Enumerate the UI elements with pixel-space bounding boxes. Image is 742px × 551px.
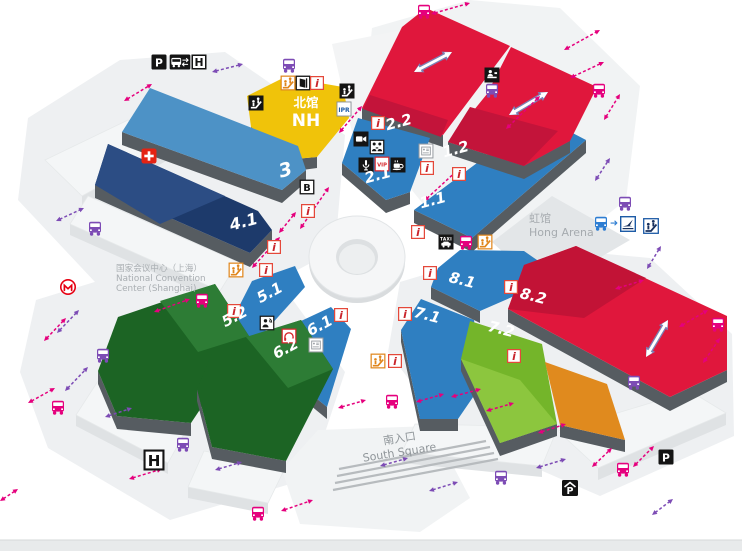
bottom-bar	[0, 540, 742, 551]
escalator-icon	[340, 84, 355, 99]
taxi-stand-icon: TAXI	[439, 235, 454, 250]
info-icon: i	[372, 117, 385, 130]
hotel-icon: H	[192, 55, 206, 69]
badge-office-icon	[419, 144, 433, 158]
shuttle-bus-magenta-icon	[252, 507, 264, 521]
svg-text:H: H	[148, 452, 161, 470]
parking-icon: P	[659, 450, 674, 465]
svg-text:i: i	[264, 264, 268, 277]
gate-b-icon: B	[300, 180, 314, 194]
label-ncc-en1: National Convention	[116, 274, 206, 284]
broadcast-room-icon	[260, 316, 274, 330]
svg-text:i: i	[339, 309, 343, 322]
svg-text:i: i	[425, 162, 429, 175]
exhibition-center-map: PHB i IPRiVIPii iiiiTAXI i ii H i iii PP…	[0, 0, 742, 551]
svg-text:B: B	[303, 183, 311, 194]
indoor-parking-icon: P	[562, 480, 578, 497]
escalator-orange-icon	[281, 76, 295, 90]
label-north-hall-en: NH	[292, 111, 320, 131]
label-ncc-en2: Center (Shanghai)	[116, 284, 196, 294]
svg-text:i: i	[272, 241, 276, 254]
info-icon: i	[453, 168, 466, 181]
metro-station-icon	[61, 280, 75, 294]
hotel-icon: H	[145, 451, 164, 470]
escalator-blue-icon	[644, 219, 659, 234]
central-ring-hole-inner	[339, 244, 375, 274]
svg-text:i: i	[512, 350, 516, 363]
ipr-office-icon: IPR	[337, 102, 351, 116]
label-hong-arena-en: Hong Arena	[529, 226, 594, 239]
svg-text:P: P	[662, 451, 670, 464]
info-icon: i	[389, 355, 402, 368]
shuttle-route-arrow	[0, 489, 18, 501]
svg-text:P: P	[567, 486, 574, 497]
svg-text:i: i	[376, 117, 380, 130]
meeting-point-icon	[370, 140, 384, 154]
venue-map: PHB i IPRiVIPii iiiiTAXI i ii H i iii PP…	[0, 0, 742, 551]
shuttle-bus-purple-icon	[619, 197, 631, 211]
door-icon	[296, 76, 310, 90]
check-in-icon	[485, 68, 500, 83]
svg-text:i: i	[509, 281, 513, 294]
svg-text:H: H	[194, 56, 203, 69]
svg-text:i: i	[393, 355, 397, 368]
video-service-icon	[354, 132, 369, 147]
svg-text:i: i	[403, 308, 407, 321]
svg-text:i: i	[315, 77, 319, 90]
arrow-right-icon	[611, 221, 617, 226]
cafe-icon	[391, 158, 406, 173]
info-icon: i	[505, 281, 518, 294]
label-ncc-cn: 国家会议中心（上海）	[116, 262, 202, 274]
parking-icon: P	[152, 55, 167, 70]
info-icon: i	[302, 205, 315, 218]
escalator-icon	[249, 96, 264, 111]
shuttle-bus-purple-icon	[283, 59, 295, 73]
label-hong-arena-cn: 虹馆	[529, 211, 551, 225]
info-icon: i	[421, 162, 434, 175]
escalator-orange-icon	[229, 263, 243, 277]
shuttle-transfer-icon	[170, 55, 191, 70]
svg-text:i: i	[457, 168, 461, 181]
svg-text:i: i	[416, 226, 420, 239]
info-icon: i	[335, 309, 348, 322]
info-icon: i	[311, 77, 324, 90]
airport-shuttle-icon	[621, 217, 636, 232]
badge-office-icon	[309, 338, 323, 352]
info-icon: i	[412, 226, 425, 239]
walk-route-arrow	[652, 499, 673, 515]
escalator-orange-icon	[478, 235, 492, 249]
escalator-orange-icon	[371, 354, 385, 368]
svg-text:P: P	[155, 56, 163, 69]
shuttle-route-arrow	[338, 399, 366, 409]
shuttle-bus-purple-icon	[495, 471, 507, 485]
info-icon: i	[260, 264, 273, 277]
label-north-hall-cn: 北馆	[293, 95, 318, 110]
svg-text:IPR: IPR	[338, 107, 350, 114]
info-icon: i	[399, 308, 412, 321]
svg-text:i: i	[428, 267, 432, 280]
svg-text:i: i	[306, 205, 310, 218]
info-icon: i	[424, 267, 437, 280]
first-aid-icon	[142, 149, 157, 164]
shuttle-bus-magenta-icon	[386, 395, 398, 409]
info-icon: i	[268, 241, 281, 254]
info-icon: i	[508, 350, 521, 363]
